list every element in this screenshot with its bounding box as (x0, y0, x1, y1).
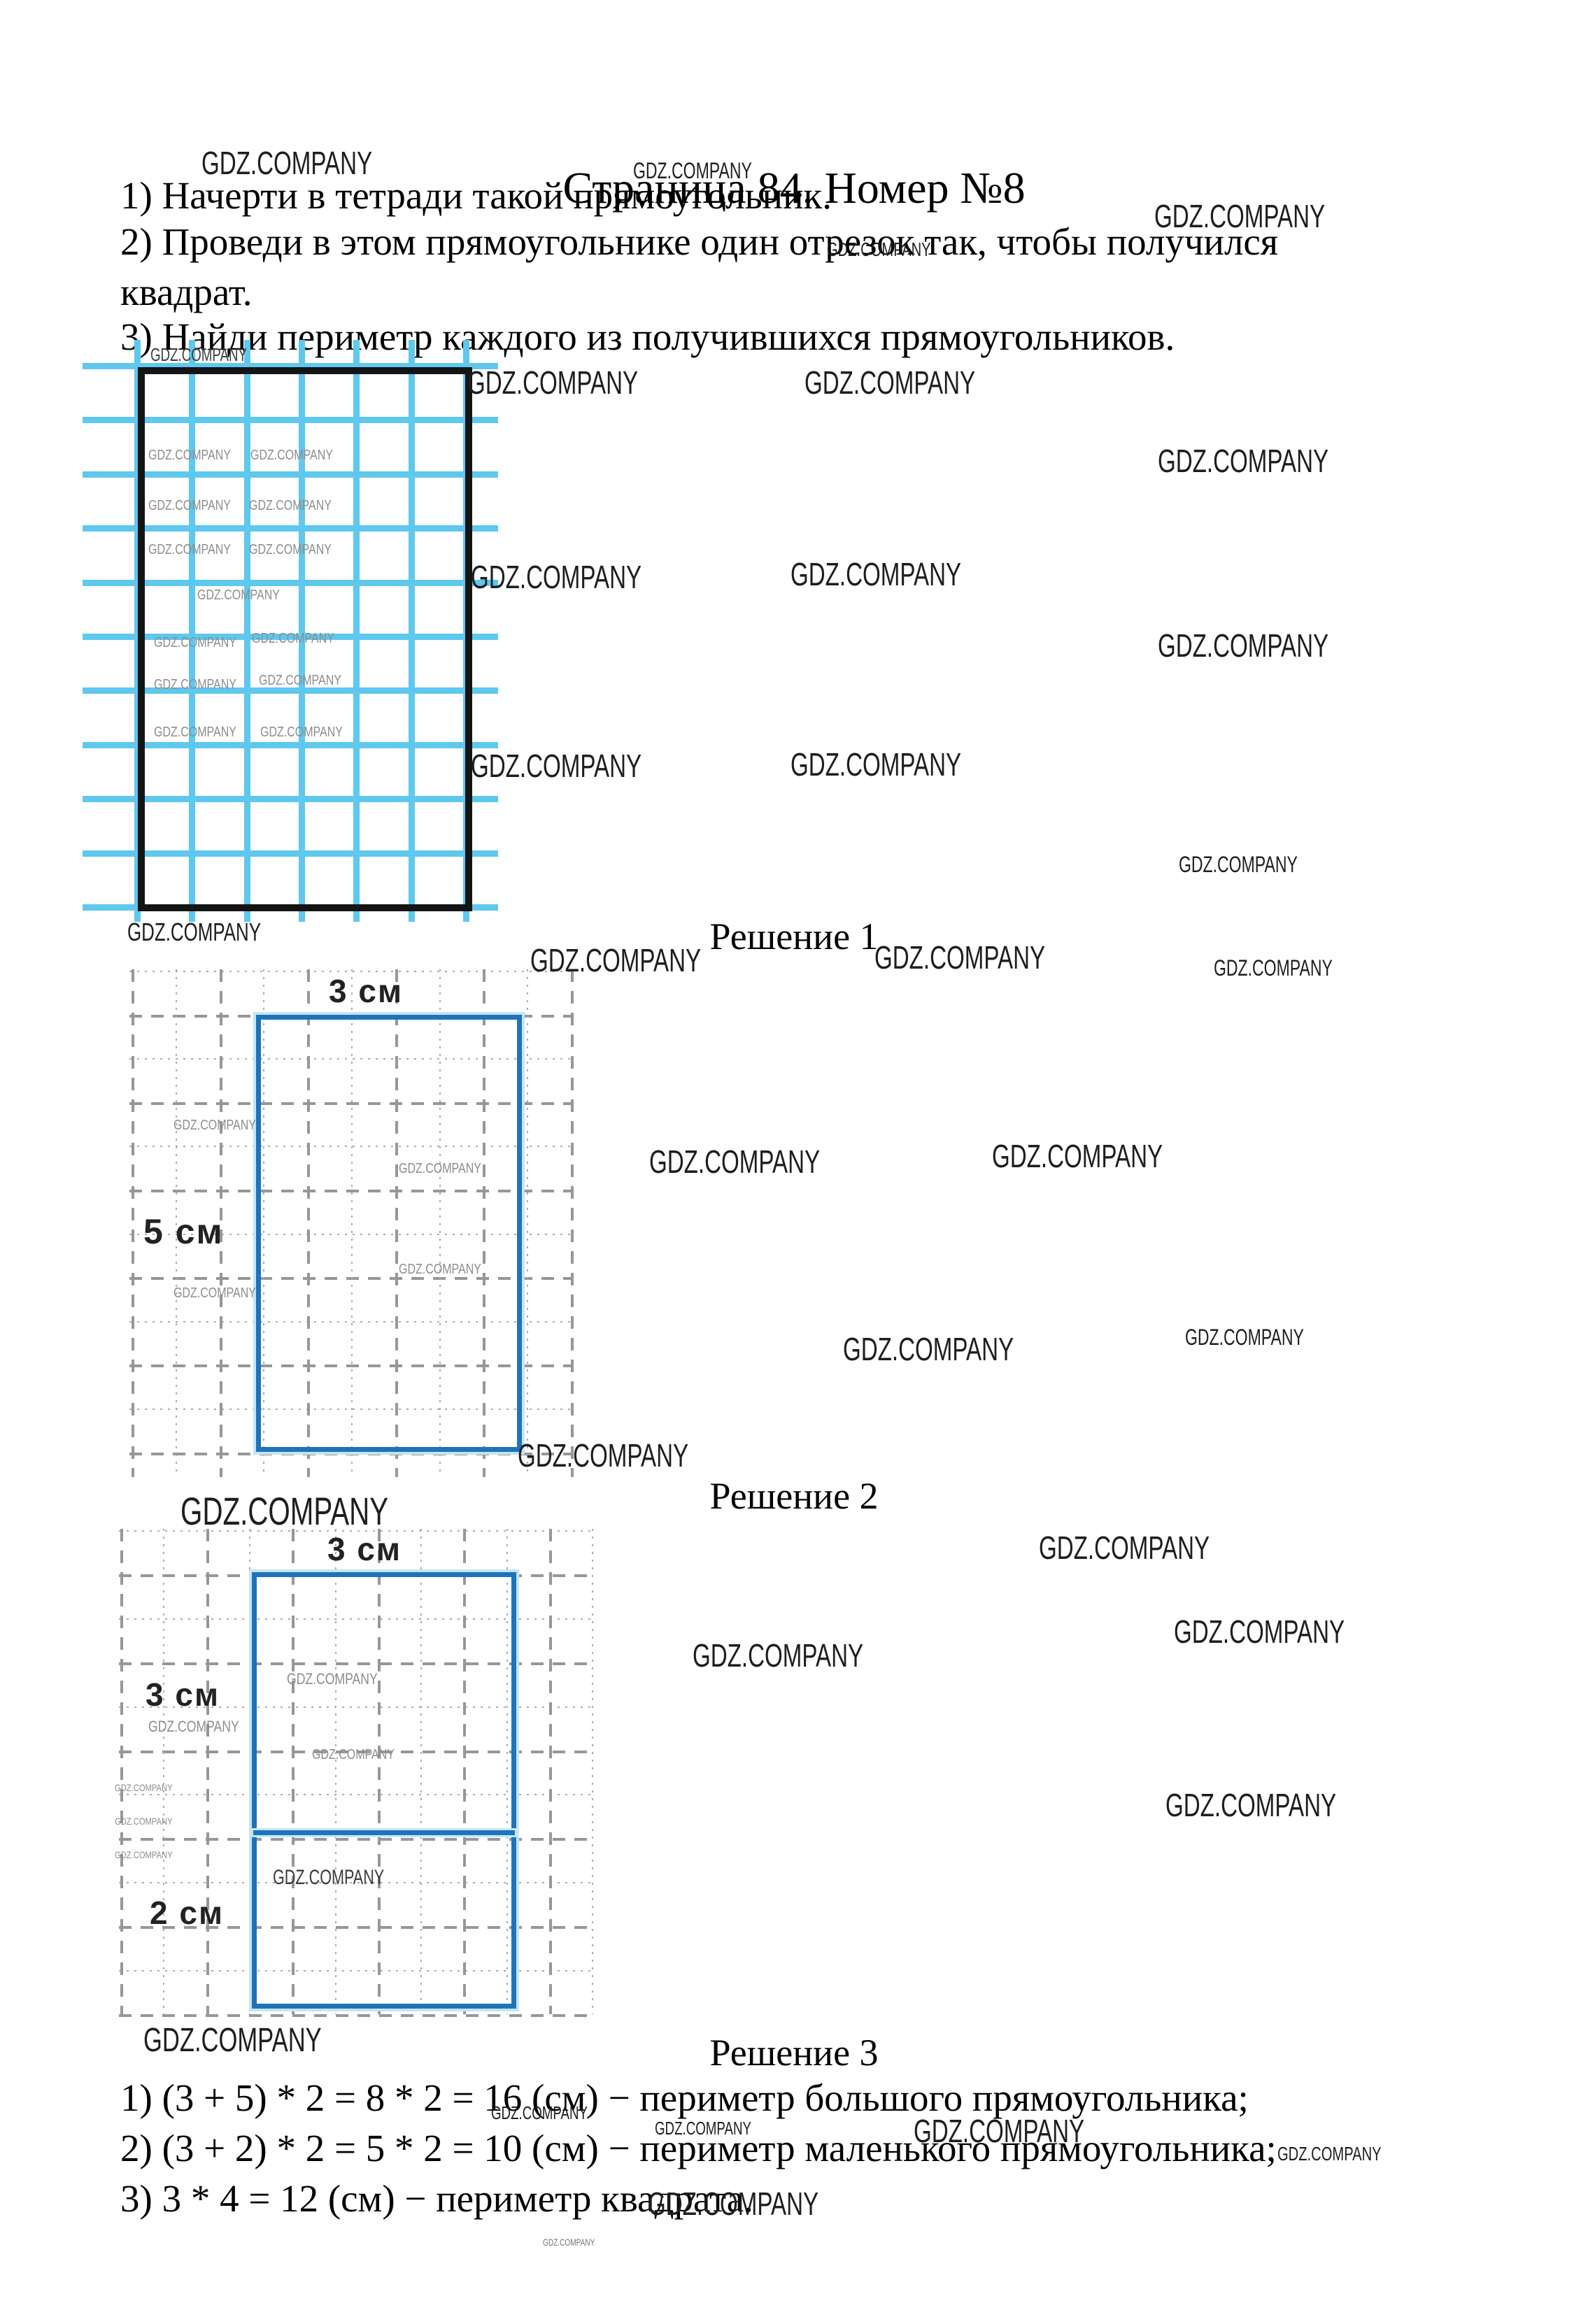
watermark: GDZ.COMPANY (655, 2118, 751, 2139)
watermark: GDZ.COMPANY (491, 2102, 588, 2124)
watermark: GDZ.COMPANY (154, 635, 236, 651)
watermark: GDZ.COMPANY (399, 1161, 481, 1177)
watermark: GDZ.COMPANY (1039, 1529, 1210, 1567)
solution1-height-label: 5 см (143, 1211, 224, 1252)
solution2-square-label: 3 см (146, 1676, 220, 1713)
watermark: GDZ.COMPANY (312, 1747, 395, 1763)
watermark: GDZ.COMPANY (201, 144, 372, 182)
watermark: GDZ.COMPANY (1158, 627, 1328, 664)
watermark: GDZ.COMPANY (249, 542, 332, 558)
watermark: GDZ.COMPANY (260, 725, 343, 741)
watermark: GDZ.COMPANY (115, 1782, 173, 1793)
solution2-divider-segment (253, 1830, 515, 1835)
solution1-width-label: 3 см (329, 972, 403, 1010)
task-line-2: 2) Проведи в этом прямоугольнике один от… (120, 220, 1278, 264)
watermark: GDZ.COMPANY (648, 2185, 818, 2223)
watermark: GDZ.COMPANY (173, 1285, 256, 1302)
watermark: GDZ.COMPANY (1165, 1786, 1336, 1824)
grid-line-h (119, 2014, 593, 2017)
grid-line-v (132, 969, 134, 1477)
task-line-4: 3) Найди периметр каждого из получившихс… (120, 315, 1175, 359)
watermark: GDZ.COMPANY (399, 1262, 481, 1278)
watermark: GDZ.COMPANY (992, 1137, 1163, 1175)
watermark: GDZ.COMPANY (633, 158, 752, 184)
watermark: GDZ.COMPANY (804, 364, 975, 401)
watermark: GDZ.COMPANY (1179, 852, 1298, 878)
grid-line-v (206, 1529, 209, 2014)
watermark: GDZ.COMPANY (249, 498, 332, 514)
task-line-3: квадрат. (120, 270, 253, 314)
watermark: GDZ.COMPANY (197, 587, 280, 604)
watermark: GDZ.COMPANY (148, 498, 231, 514)
watermark: GDZ.COMPANY (287, 1670, 378, 1688)
watermark: GDZ.COMPANY (1154, 197, 1325, 235)
grid-line-v (571, 969, 574, 1477)
watermark: GDZ.COMPANY (143, 2021, 322, 2060)
grid-line-v (249, 1529, 250, 2014)
watermark: GDZ.COMPANY (1174, 1613, 1345, 1651)
watermark: GDZ.COMPANY (259, 673, 341, 689)
watermark: GDZ.COMPANY (543, 2237, 595, 2248)
watermark: GDZ.COMPANY (127, 918, 261, 947)
watermark: GDZ.COMPANY (1214, 955, 1333, 981)
watermark: GDZ.COMPANY (115, 1849, 173, 1860)
watermark: GDZ.COMPANY (843, 1330, 1014, 1368)
watermark: GDZ.COMPANY (1158, 442, 1328, 480)
grid-line-v (527, 969, 528, 1477)
watermark: GDZ.COMPANY (693, 1637, 863, 1674)
watermark: GDZ.COMPANY (273, 1866, 384, 1890)
grid-line-v (592, 1529, 593, 2014)
watermark: GDZ.COMPANY (791, 555, 961, 593)
watermark: GDZ.COMPANY (1185, 1325, 1304, 1350)
grid-line-v (120, 1529, 123, 2014)
watermark: GDZ.COMPANY (649, 1143, 820, 1181)
solution2-rectangle (252, 1572, 516, 2009)
watermark: GDZ.COMPANY (173, 1118, 256, 1134)
watermark: GDZ.COMPANY (150, 344, 247, 366)
watermark: GDZ.COMPANY (148, 542, 231, 558)
watermark: GDZ.COMPANY (115, 1816, 173, 1827)
watermark: GDZ.COMPANY (154, 677, 236, 693)
grid-line-v (549, 1529, 552, 2014)
worksheet-page: Страница 84. Номер №8 1) Начерти в тетра… (0, 0, 1588, 2324)
watermark: GDZ.COMPANY (471, 747, 641, 785)
solution2-rect-label: 2 см (150, 1894, 224, 1932)
watermark: GDZ.COMPANY (874, 939, 1045, 976)
watermark: GDZ.COMPANY (148, 448, 231, 464)
watermark: GDZ.COMPANY (914, 2112, 1084, 2150)
watermark: GDZ.COMPANY (467, 364, 638, 401)
watermark: GDZ.COMPANY (530, 941, 701, 979)
watermark: GDZ.COMPANY (791, 746, 961, 783)
watermark: GDZ.COMPANY (180, 1488, 388, 1534)
watermark: GDZ.COMPANY (250, 448, 333, 464)
watermark: GDZ.COMPANY (1277, 2143, 1382, 2165)
solution1-rectangle (256, 1015, 522, 1452)
watermark: GDZ.COMPANY (252, 631, 334, 647)
watermark: GDZ.COMPANY (154, 725, 236, 741)
grid-line-v (163, 1529, 164, 2014)
solution2-width-label: 3 см (327, 1530, 402, 1568)
watermark: GDZ.COMPANY (148, 1718, 239, 1736)
watermark: GDZ.COMPANY (518, 1437, 688, 1474)
watermark: GDZ.COMPANY (827, 238, 931, 261)
watermark: GDZ.COMPANY (471, 558, 641, 596)
